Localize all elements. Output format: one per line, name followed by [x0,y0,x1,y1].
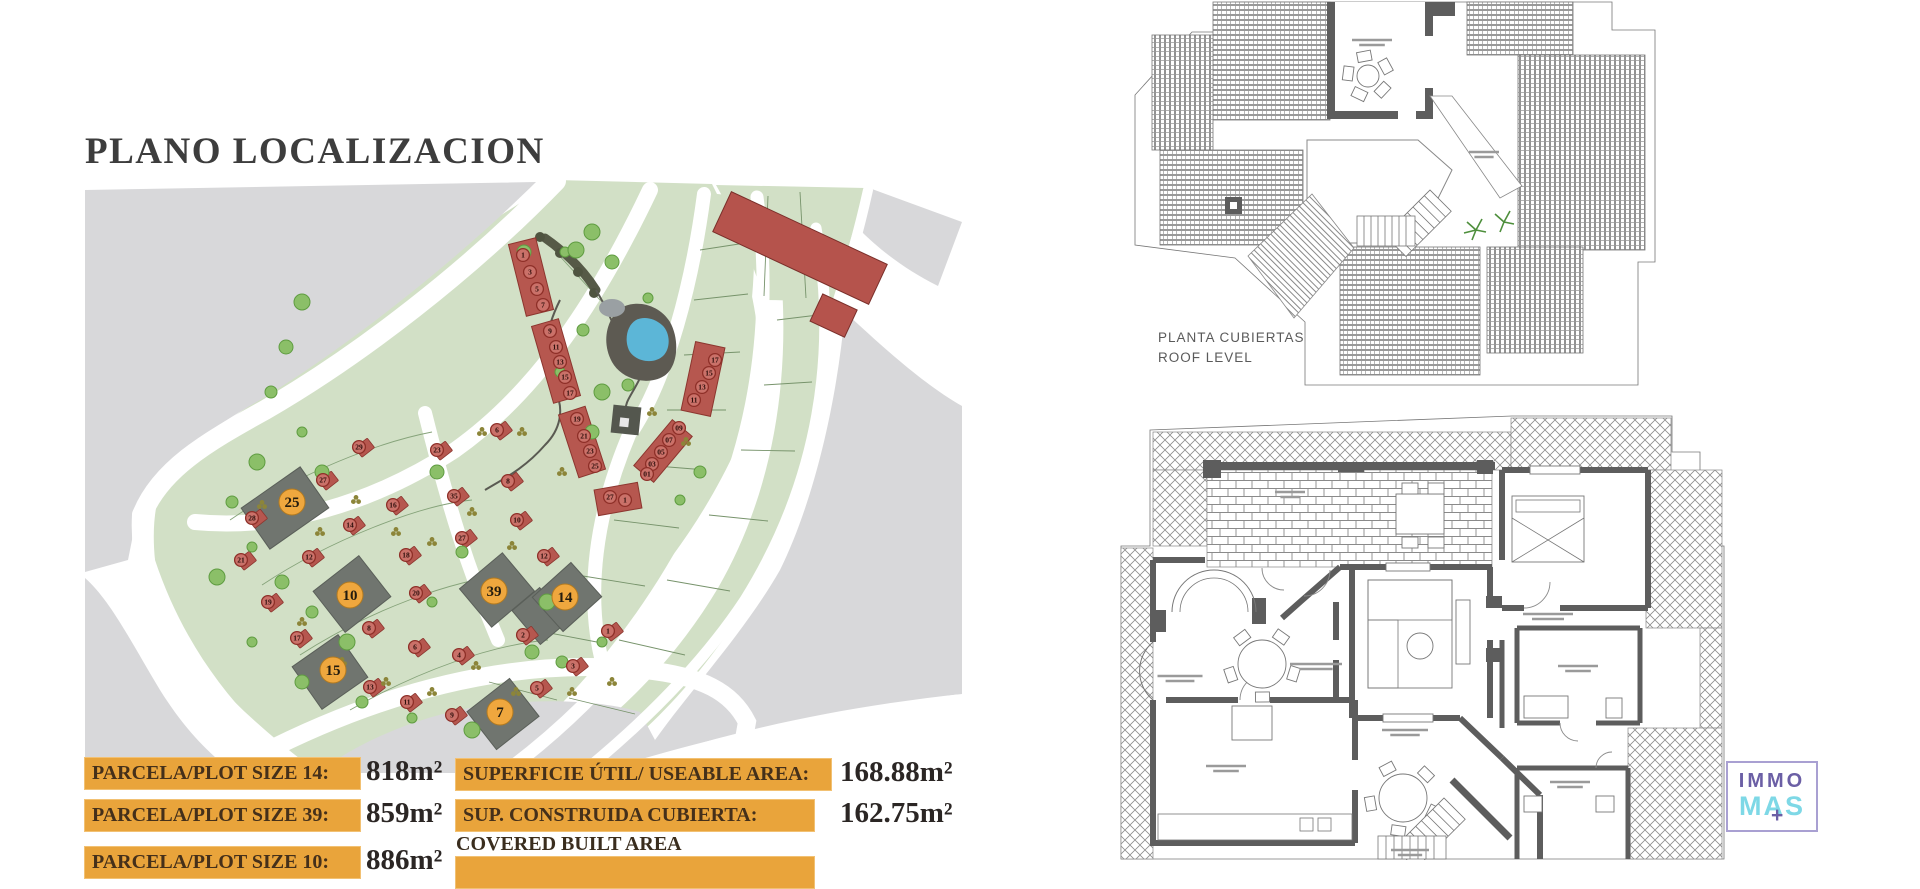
svg-text:09: 09 [675,423,683,432]
svg-text:21: 21 [580,431,588,440]
svg-text:20: 20 [412,588,420,597]
svg-text:19: 19 [573,414,581,423]
svg-text:3: 3 [528,267,532,276]
unit-number: 3 [567,660,580,673]
unit-number: 29 [353,441,366,454]
tree-icon [295,675,309,689]
brick-patio [1207,470,1492,567]
svg-text:27: 27 [319,475,327,484]
unit-number: 13 [696,381,709,394]
svg-text:6: 6 [495,425,499,434]
tree-icon [622,379,634,391]
svg-text:11: 11 [552,342,559,351]
svg-text:21: 21 [237,555,245,564]
unit-number: 01 [641,468,654,481]
logo-text-immo: IMMO [1728,770,1816,793]
tree-icon [605,255,619,269]
tree-icon [597,637,607,647]
svg-text:10: 10 [343,588,358,604]
highlighted-plot-number: 39 [481,578,507,604]
unit-number: 3 [524,266,537,279]
highlighted-plot-number: 25 [279,489,305,515]
site-plan-map: 1357911131517192123251715131109070503012… [85,172,965,773]
tree-icon [456,546,468,558]
svg-text:9: 9 [548,326,552,335]
breakfast-table [1238,640,1286,688]
unit-number: 7 [537,299,550,312]
unit-number: 35 [448,490,461,503]
svg-text:12: 12 [305,552,313,561]
svg-text:01: 01 [643,469,651,478]
tree-icon [247,637,257,647]
unit-number: 28 [246,512,259,525]
unit-number: 5 [531,283,544,296]
plot-size-14-label: PARCELA/PLOT SIZE 14: [84,757,361,790]
svg-text:25: 25 [285,495,300,511]
unit-number: 27 [456,532,469,545]
unit-number: 12 [303,551,316,564]
highlighted-plot-number: 7 [487,699,513,725]
tree-icon [247,542,257,552]
unit-number: 25 [589,460,602,473]
svg-text:8: 8 [367,623,371,632]
tree-icon [209,569,225,585]
floor-plan [1110,412,1730,860]
svg-text:12: 12 [540,551,548,560]
unit-number: 27 [604,491,617,504]
tree-icon [464,722,480,738]
playground [611,405,642,436]
unit-number: 07 [663,434,676,447]
unit-number: 17 [564,387,577,400]
svg-text:17: 17 [293,633,301,642]
roof-plan: PLANTA CUBIERTAS ROOF LEVEL [1120,0,1680,400]
plot-size-10-label: PARCELA/PLOT SIZE 10: [84,846,361,879]
svg-text:11: 11 [403,697,410,706]
svg-text:18: 18 [402,550,410,559]
unit-number: 09 [673,422,686,435]
unit-number: 1 [602,625,615,638]
svg-text:28: 28 [248,513,256,522]
unit-number: 4 [453,649,466,662]
tree-icon [275,575,289,589]
useable-area-value: 168.88m² [840,756,953,789]
built-area-sublabel: COVERED BUILT AREA [456,833,682,856]
dining-table [1379,774,1427,822]
svg-text:03: 03 [648,459,656,468]
svg-text:15: 15 [705,368,713,377]
unit-number: 5 [531,682,544,695]
svg-text:16: 16 [389,500,397,509]
unit-number: 14 [344,519,357,532]
bathtub [1524,696,1568,718]
tree-icon [356,696,368,708]
unit-number: 9 [544,325,557,338]
highlighted-plot-number: 10 [337,582,363,608]
unit-number: 6 [409,641,422,654]
svg-text:3: 3 [571,661,575,670]
svg-text:35: 35 [450,491,458,500]
unit-number: 15 [703,367,716,380]
svg-text:4: 4 [457,650,461,659]
tree-icon [407,713,417,723]
svg-text:13: 13 [556,357,564,366]
unit-number: 1 [619,494,632,507]
unit-number: 23 [584,445,597,458]
built-area-value: 162.75m² [840,797,953,830]
tree-icon [568,242,584,258]
unit-number: 11 [688,394,701,407]
tree-icon [297,427,307,437]
roof-plants [1464,211,1514,240]
svg-text:5: 5 [535,683,539,692]
unit-number: 15 [559,371,572,384]
unit-number: 8 [363,622,376,635]
svg-text:7: 7 [496,705,504,721]
unit-number: 17 [291,632,304,645]
tree-icon [675,495,685,505]
svg-text:14: 14 [558,590,574,606]
svg-text:9: 9 [450,710,454,719]
unit-number: 2 [517,629,530,642]
unit-number: 21 [578,430,591,443]
tree-icon [694,466,706,478]
svg-text:5: 5 [535,284,539,293]
built-area-label: SUP. CONSTRUIDA CUBIERTA: [455,799,815,832]
unit-number: 11 [550,341,563,354]
table-bottom-bar [455,856,815,889]
roof-plan-label-es: PLANTA CUBIERTAS [1158,330,1305,345]
svg-text:07: 07 [665,435,673,444]
unit-number: 23 [431,444,444,457]
tree-icon [339,634,355,650]
svg-text:23: 23 [433,445,441,454]
tree-icon [306,606,318,618]
svg-text:10: 10 [513,515,521,524]
unit-number: 19 [571,413,584,426]
roof-plan-label-en: ROOF LEVEL [1158,350,1253,365]
plot-size-39-value: 859m² [366,797,442,830]
tree-icon [427,597,437,607]
immomas-logo: IMMO MAS+ [1726,761,1818,832]
svg-text:1: 1 [606,626,610,635]
highlighted-plot-number: 15 [320,657,346,683]
unit-number: 21 [235,554,248,567]
unit-number: 05 [655,446,668,459]
tree-icon [226,496,238,508]
unit-number: 11 [401,696,414,709]
tree-icon [430,465,444,479]
svg-text:19: 19 [264,597,272,606]
svg-text:7: 7 [541,300,545,309]
unit-number: 16 [387,499,400,512]
svg-text:1: 1 [623,495,627,504]
bed [1512,496,1584,562]
svg-text:15: 15 [326,663,341,679]
svg-text:2: 2 [521,630,525,639]
unit-number: 18 [400,549,413,562]
unit-number: 9 [446,709,459,722]
svg-text:13: 13 [366,682,374,691]
unit-number: 13 [554,356,567,369]
svg-text:27: 27 [606,492,614,501]
svg-text:39: 39 [487,584,502,600]
unit-number: 20 [410,587,423,600]
svg-text:13: 13 [698,382,706,391]
unit-number: 13 [364,681,377,694]
plot-size-10-value: 886m² [366,844,442,877]
svg-text:17: 17 [711,355,719,364]
tree-icon [265,386,277,398]
useable-area-label: SUPERFICIE ÚTIL/ USEABLE AREA: [455,758,832,791]
tree-icon [525,645,539,659]
tree-icon [643,293,653,303]
svg-text:14: 14 [346,520,354,529]
unit-number: 17 [709,354,722,367]
roof-steps [1357,216,1415,246]
svg-text:17: 17 [566,388,574,397]
tree-icon [577,324,589,336]
unit-number: 10 [511,514,524,527]
svg-text:23: 23 [586,446,594,455]
logo-text-mas: MAS+ [1728,793,1816,819]
terrace-table [1357,65,1379,87]
svg-text:8: 8 [506,476,510,485]
tree-icon [249,454,265,470]
highlighted-plot-number: 14 [552,584,578,610]
svg-text:11: 11 [690,395,697,404]
logo-plus-icon: + [1771,803,1785,829]
svg-text:29: 29 [355,442,363,451]
tree-icon [584,224,600,240]
unit-number: 1 [517,249,530,262]
tree-icon [594,384,610,400]
unit-number: 6 [491,424,504,437]
unit-number: 12 [538,550,551,563]
kitchen-island [1232,706,1272,740]
unit-number: 27 [317,474,330,487]
unit-number: 8 [502,475,515,488]
page-title: PLANO LOCALIZACION [85,130,545,173]
plot-size-14-value: 818m² [366,755,442,788]
svg-text:27: 27 [458,533,466,542]
svg-text:25: 25 [591,461,599,470]
svg-text:05: 05 [657,447,665,456]
toilet [1606,698,1622,718]
svg-text:6: 6 [413,642,417,651]
svg-text:1: 1 [521,250,525,259]
tree-icon [279,340,293,354]
tree-icon [294,294,310,310]
svg-text:15: 15 [561,372,569,381]
plot-size-39-label: PARCELA/PLOT SIZE 39: [84,799,361,832]
unit-number: 19 [262,596,275,609]
